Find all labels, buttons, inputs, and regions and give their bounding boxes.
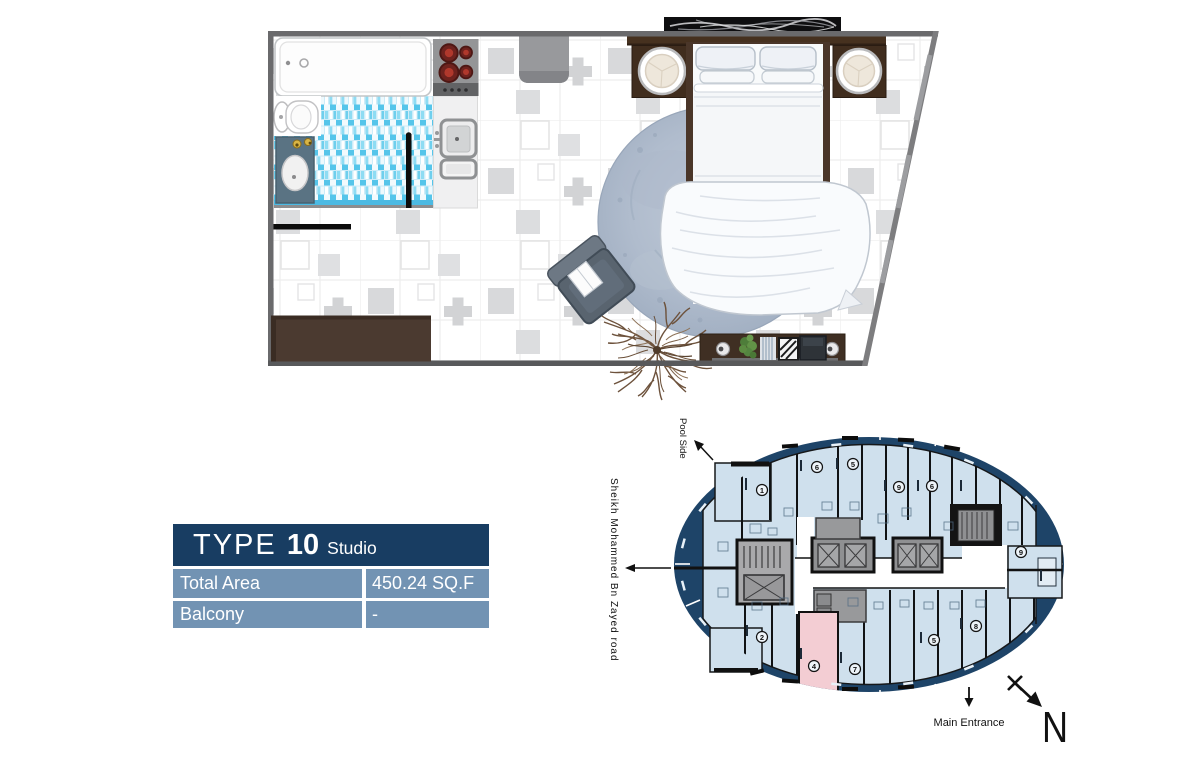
svg-text:6: 6 <box>930 482 934 491</box>
svg-text:7: 7 <box>853 665 857 674</box>
svg-text:Pool Side: Pool Side <box>677 418 688 459</box>
svg-text:Main Entrance: Main Entrance <box>934 717 1005 729</box>
svg-text:9: 9 <box>1019 548 1023 557</box>
svg-text:1: 1 <box>760 486 764 495</box>
svg-text:5: 5 <box>932 636 936 645</box>
svg-text:9: 9 <box>897 483 901 492</box>
svg-text:2: 2 <box>760 633 764 642</box>
svg-text:6: 6 <box>815 463 819 472</box>
svg-text:Sheikh Mohammed Bn Zayed road: Sheikh Mohammed Bn Zayed road <box>608 478 619 662</box>
svg-text:5: 5 <box>851 460 855 469</box>
svg-text:N: N <box>1042 703 1068 752</box>
svg-text:8: 8 <box>974 622 978 631</box>
